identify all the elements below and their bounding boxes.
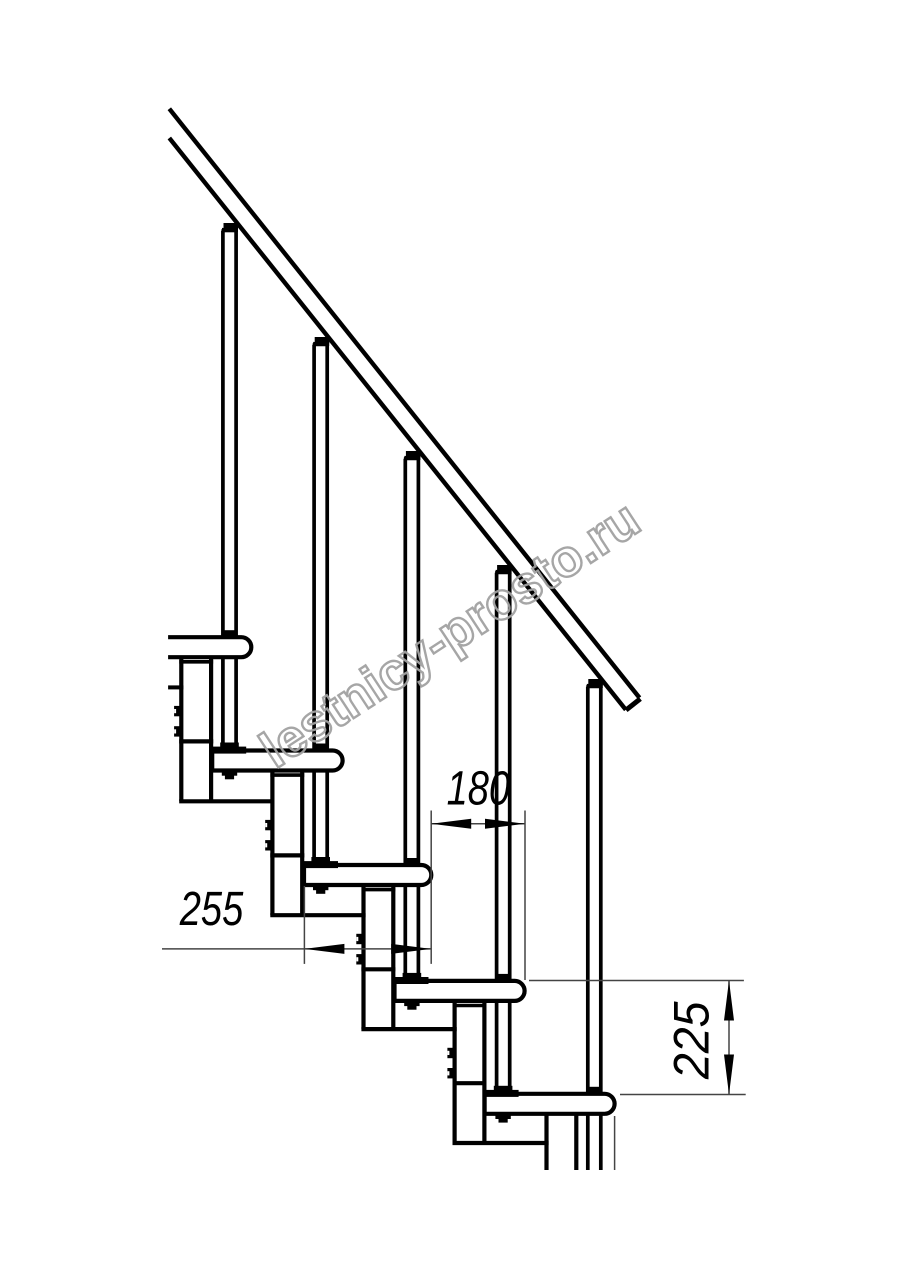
svg-text:225: 225: [664, 1001, 720, 1080]
svg-text:180: 180: [447, 763, 511, 816]
svg-text:255: 255: [179, 883, 244, 936]
